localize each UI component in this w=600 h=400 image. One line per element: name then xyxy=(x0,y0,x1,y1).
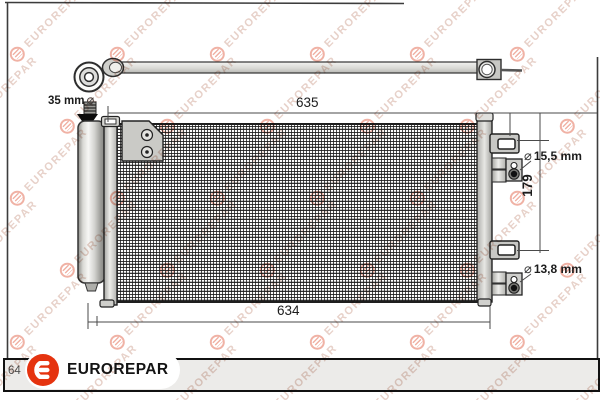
drier-stub xyxy=(85,283,98,291)
dimension-label-bottom-width: 634 xyxy=(277,303,300,318)
dimension-label-top-width: 635 xyxy=(296,95,319,110)
dimension-line-635 xyxy=(108,106,597,136)
pipe-collar xyxy=(103,59,124,77)
brand-name: EUROREPAR xyxy=(67,361,169,379)
page-number: 64 xyxy=(8,365,21,377)
inlet-pipe-assembly xyxy=(75,59,523,92)
banjo-fitting xyxy=(75,63,104,92)
bottom-port-diameter-label: ⌀13,8 mm xyxy=(524,261,582,277)
bottom-port-size: 13,8 mm xyxy=(534,262,582,276)
pipe-pin xyxy=(501,70,522,71)
pipe-body xyxy=(118,62,496,73)
pipe-fitting-size: 35 mm xyxy=(48,95,84,107)
pipe-end-fitting xyxy=(477,60,522,80)
brand-logo-icon xyxy=(26,353,60,387)
mounting-bracket-left xyxy=(122,121,163,161)
catalog-page: 635 634 179 35 mm⌀ ⌀15,5 mm ⌀13,8 mm 64 … xyxy=(0,0,600,400)
receiver-drier xyxy=(78,121,105,291)
bracket-top-right xyxy=(490,134,519,153)
pipe-fitting-label: 35 mm⌀ xyxy=(48,92,94,108)
top-port-size: 15,5 mm xyxy=(534,149,582,163)
diameter-symbol-icon: ⌀ xyxy=(524,148,534,163)
port-top xyxy=(492,158,522,182)
brand-logo-badge: EUROREPAR xyxy=(25,351,180,389)
diameter-symbol-icon: ⌀ xyxy=(84,92,94,107)
bracket-bottom-right xyxy=(490,241,519,259)
top-port-diameter-label: ⌀15,5 mm xyxy=(524,148,582,164)
dimension-label-height: 179 xyxy=(520,174,535,197)
port-bottom xyxy=(492,272,522,295)
diameter-symbol-icon: ⌀ xyxy=(524,261,534,276)
technical-drawing xyxy=(0,0,600,400)
